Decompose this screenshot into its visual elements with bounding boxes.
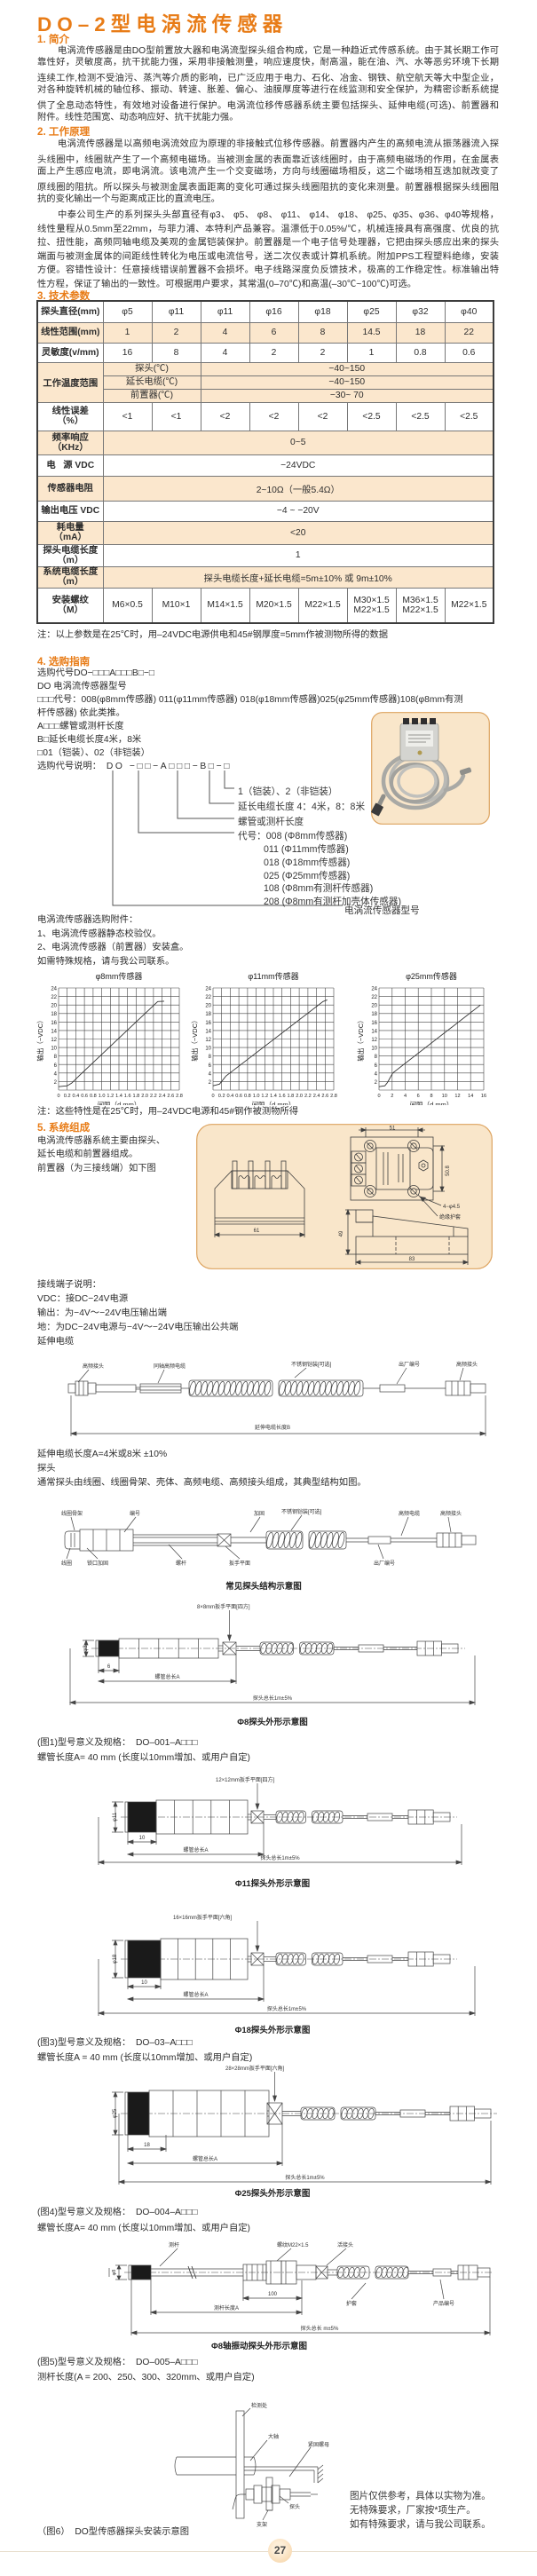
svg-text:12: 12 [371,1038,377,1043]
svg-text:10: 10 [141,1980,147,1986]
svg-text:51: 51 [390,1126,396,1132]
svg-text:2.4: 2.4 [313,1094,320,1099]
svg-text:加固: 加固 [254,1510,265,1517]
svg-text:0: 0 [377,1094,380,1099]
svg-text:2: 2 [54,1080,58,1086]
svg-text:2: 2 [375,1080,378,1086]
svg-text:2.0: 2.0 [296,1094,303,1099]
svg-text:0.4: 0.4 [73,1094,80,1099]
svg-text:Φ8探头外形示意图: Φ8探头外形示意图 [237,1717,308,1727]
svg-text:20: 20 [51,1004,57,1009]
svg-text:护套: 护套 [346,2300,357,2307]
svg-text:φ11: φ11 [113,1812,118,1821]
svg-text:φ25: φ25 [113,2108,118,2118]
svg-text:18: 18 [205,1012,211,1017]
svg-text:18: 18 [144,2143,150,2148]
svg-text:探头: 探头 [289,2503,300,2510]
svg-text:1.4: 1.4 [115,1094,122,1099]
svg-text:产品编号: 产品编号 [433,2300,454,2307]
svg-text:0: 0 [211,1094,214,1099]
svg-text:高频接头: 高频接头 [456,1361,478,1368]
svg-text:0.6: 0.6 [235,1094,242,1099]
svg-text:1.0: 1.0 [99,1094,106,1099]
svg-text:检测处: 检测处 [251,2402,267,2409]
svg-text:输出（−VDC）: 输出（−VDC） [36,1016,44,1061]
svg-text:10: 10 [442,1094,447,1099]
svg-text:4: 4 [54,1071,58,1077]
svg-text:高频电缆: 高频电缆 [399,1510,420,1517]
svg-text:探头总长1m±5%: 探头总长1m±5% [260,1854,300,1861]
svg-text:8: 8 [375,1055,378,1060]
svg-text:φ8: φ8 [112,2270,117,2276]
svg-text:常见探头结构示意图: 常见探头结构示意图 [225,1581,302,1592]
svg-text:2: 2 [391,1094,393,1099]
svg-text:10: 10 [371,1047,377,1052]
svg-text:不锈钢铠装[可选]: 不锈钢铠装[可选] [291,1361,332,1368]
svg-text:高频接头: 高频接头 [440,1510,462,1517]
svg-text:14: 14 [51,1029,57,1034]
svg-text:1.6: 1.6 [124,1094,131,1099]
svg-text:22: 22 [51,995,57,1000]
svg-text:延伸电缆长度B: 延伸电缆长度B [255,1424,290,1431]
svg-text:14: 14 [468,1094,473,1099]
svg-text:16: 16 [51,1021,57,1026]
svg-text:出厂编号: 出厂编号 [399,1361,420,1368]
svg-text:0.6: 0.6 [81,1094,88,1099]
svg-text:线圈骨架: 线圈骨架 [61,1510,83,1517]
svg-text:φ25mm传感器: φ25mm传感器 [406,971,457,981]
svg-text:24: 24 [51,987,57,992]
svg-text:2.6: 2.6 [321,1094,328,1099]
svg-text:绝缘护套: 绝缘护套 [439,1213,461,1221]
svg-text:Φ11探头外形示意图: Φ11探头外形示意图 [235,1878,310,1889]
svg-text:2.8: 2.8 [176,1094,183,1099]
svg-text:28×28mm扳手平面[六角]: 28×28mm扳手平面[六角] [225,2065,285,2072]
svg-text:0: 0 [57,1094,59,1099]
svg-text:8: 8 [209,1055,212,1060]
svg-text:同轴高频电缆: 同轴高频电缆 [154,1363,186,1370]
svg-text:螺纹M22×1.5: 螺纹M22×1.5 [277,2241,309,2248]
svg-text:1.6: 1.6 [279,1094,286,1099]
svg-text:16: 16 [371,1021,377,1026]
svg-text:6: 6 [209,1063,212,1069]
svg-text:4: 4 [209,1071,212,1077]
svg-text:6: 6 [107,1664,111,1670]
svg-text:10: 10 [205,1047,211,1052]
svg-text:20: 20 [205,1004,211,1009]
svg-text:大轴: 大轴 [268,2433,279,2440]
svg-text:16: 16 [481,1094,486,1099]
svg-text:12: 12 [205,1038,211,1043]
svg-text:6: 6 [54,1063,58,1069]
svg-text:12×12mm扳手平面[四方]: 12×12mm扳手平面[四方] [216,1776,275,1783]
svg-text:螺杆: 螺杆 [176,1560,186,1567]
svg-text:61: 61 [254,1229,260,1234]
svg-text:14: 14 [205,1029,211,1034]
svg-text:扳手平面: 扳手平面 [229,1560,250,1567]
svg-text:1.8: 1.8 [288,1094,295,1099]
svg-text:2.2: 2.2 [304,1094,312,1099]
svg-text:24: 24 [205,987,211,992]
svg-text:16: 16 [205,1021,211,1026]
svg-text:φ8: φ8 [83,1645,89,1652]
svg-text:0.2: 0.2 [218,1094,225,1099]
svg-text:2.8: 2.8 [330,1094,337,1099]
svg-text:1.0: 1.0 [253,1094,260,1099]
svg-text:φ8mm传感器: φ8mm传感器 [96,971,143,981]
svg-text:1.2: 1.2 [261,1094,268,1099]
svg-text:1.4: 1.4 [270,1094,277,1099]
svg-text:0.8: 0.8 [90,1094,97,1099]
svg-text:6: 6 [375,1063,378,1069]
svg-text:2: 2 [209,1080,212,1086]
svg-text:探头总长 m±5%: 探头总长 m±5% [301,2325,339,2332]
svg-text:100: 100 [268,2292,278,2297]
svg-text:4: 4 [375,1071,378,1077]
svg-text:不锈钢铠装[可选]: 不锈钢铠装[可选] [281,1508,322,1515]
svg-text:0.4: 0.4 [227,1094,234,1099]
svg-text:紧固螺母: 紧固螺母 [308,2441,329,2448]
svg-text:螺管总长A: 螺管总长A [193,2155,217,2162]
svg-text:2.6: 2.6 [167,1094,174,1099]
svg-text:24: 24 [371,987,377,992]
svg-text:10: 10 [51,1047,57,1052]
svg-text:1.8: 1.8 [133,1094,140,1099]
svg-text:探头总长1m±5%: 探头总长1m±5% [253,1695,293,1702]
svg-text:编号: 编号 [130,1510,140,1517]
svg-text:16×16mm扳手平面[六角]: 16×16mm扳手平面[六角] [173,1914,233,1921]
svg-text:输出（−VDC）: 输出（−VDC） [190,1016,199,1061]
svg-text:12: 12 [51,1038,57,1043]
svg-text:22: 22 [205,995,211,1000]
svg-text:18: 18 [371,1012,377,1017]
svg-text:线圈: 线圈 [61,1560,72,1567]
svg-text:高频接头: 高频接头 [83,1363,104,1370]
svg-text:探头总长1m±5%: 探头总长1m±5% [267,2005,307,2012]
svg-text:8: 8 [430,1094,432,1099]
svg-text:6: 6 [417,1094,420,1099]
svg-text:18: 18 [51,1012,57,1017]
svg-text:1.2: 1.2 [107,1094,114,1099]
svg-text:0.2: 0.2 [64,1094,71,1099]
svg-text:出厂编号: 出厂编号 [374,1560,395,1567]
svg-text:8: 8 [54,1055,58,1060]
svg-text:螺管总长A: 螺管总长A [183,1991,208,1998]
svg-text:螺管总长A: 螺管总长A [183,1846,208,1853]
svg-text:2.0: 2.0 [141,1094,148,1099]
svg-text:φ18: φ18 [113,1954,118,1964]
svg-text:8×8mm扳手平面[四方]: 8×8mm扳手平面[四方] [197,1603,250,1610]
svg-text:探头总长1m±5%: 探头总长1m±5% [285,2174,325,2181]
svg-text:10: 10 [139,1836,146,1841]
svg-text:活接头: 活接头 [337,2241,353,2248]
svg-text:锁口加固: 锁口加固 [87,1560,108,1567]
svg-text:Φ25探头外形示意图: Φ25探头外形示意图 [235,2188,311,2199]
svg-text:49: 49 [339,1230,344,1237]
svg-text:输出（−VDC）: 输出（−VDC） [356,1016,365,1061]
svg-text:φ11mm传感器: φ11mm传感器 [248,971,298,981]
svg-text:20: 20 [371,1004,377,1009]
svg-text:14: 14 [371,1029,377,1034]
svg-text:0.8: 0.8 [244,1094,251,1099]
svg-text:2.2: 2.2 [150,1094,157,1099]
svg-text:2.4: 2.4 [159,1094,166,1099]
svg-text:12: 12 [454,1094,460,1099]
svg-text:4: 4 [404,1094,407,1099]
svg-text:22: 22 [371,995,377,1000]
svg-text:螺管总长A: 螺管总长A [154,1673,179,1680]
svg-text:4−φ4.5: 4−φ4.5 [443,1205,461,1210]
svg-text:测杆: 测杆 [169,2241,179,2248]
svg-text:Φ18探头外形示意图: Φ18探头外形示意图 [235,2025,311,2035]
svg-text:Φ8轴振动探头外形示意图: Φ8轴振动探头外形示意图 [211,2341,307,2351]
svg-text:测杆长度A: 测杆长度A [214,2304,239,2311]
svg-text:83: 83 [409,1257,415,1262]
svg-text:50.8: 50.8 [446,1166,451,1176]
